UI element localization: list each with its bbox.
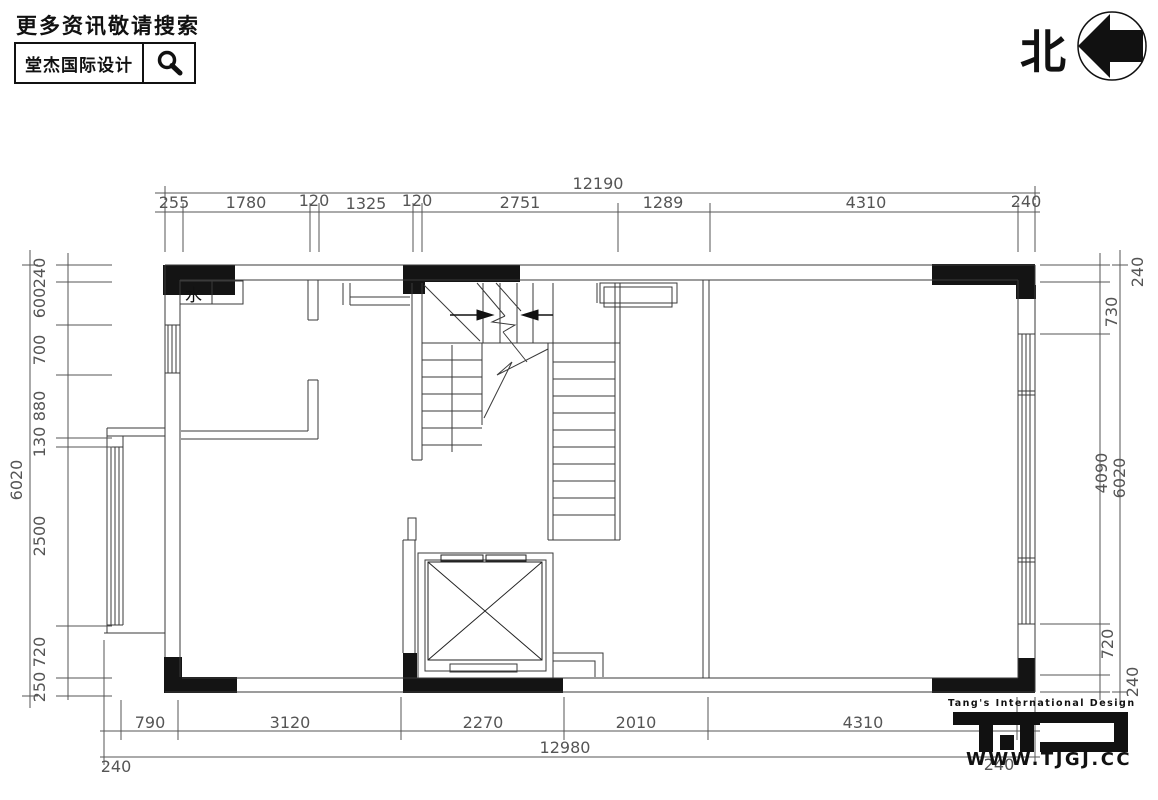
svg-text:255: 255	[159, 193, 190, 212]
svg-text:730: 730	[1102, 297, 1121, 328]
svg-text:880: 880	[30, 391, 49, 422]
svg-text:240: 240	[1011, 192, 1042, 211]
dim-left-labels: 240 600 700 880 130 2500 720 250 6020	[7, 258, 49, 703]
water-label: 水	[185, 286, 202, 306]
svg-text:3120: 3120	[270, 713, 311, 732]
svg-text:2010: 2010	[616, 713, 657, 732]
svg-text:4090: 4090	[1092, 453, 1111, 494]
svg-text:6020: 6020	[1110, 458, 1129, 499]
svg-text:700: 700	[30, 335, 49, 366]
svg-text:2270: 2270	[463, 713, 504, 732]
svg-text:240: 240	[101, 757, 132, 776]
svg-text:1289: 1289	[643, 193, 684, 212]
svg-text:12190: 12190	[573, 174, 624, 193]
svg-text:1780: 1780	[226, 193, 267, 212]
outer-walls	[104, 265, 1035, 692]
svg-text:2500: 2500	[30, 516, 49, 557]
north-arrow-icon	[1078, 12, 1146, 80]
svg-text:600: 600	[30, 288, 49, 319]
floor-plan-drawing: 水 12190 255 17	[0, 0, 1158, 800]
svg-text:240: 240	[1123, 667, 1142, 698]
brand-name: 堂杰国际设计	[16, 44, 144, 82]
header-tagline: 更多资讯敬请搜索	[16, 10, 200, 40]
north-label: 北	[1020, 16, 1066, 82]
footer-brand-line: Tang's International Design	[948, 698, 1124, 709]
brand-search-box: 堂杰国际设计	[14, 42, 196, 84]
svg-text:240: 240	[30, 258, 49, 289]
svg-text:720: 720	[1098, 629, 1117, 660]
tid-logo	[953, 712, 1128, 752]
svg-text:2751: 2751	[500, 193, 541, 212]
svg-text:6020: 6020	[7, 460, 26, 501]
svg-text:4310: 4310	[843, 713, 884, 732]
svg-text:130: 130	[30, 427, 49, 458]
svg-text:250: 250	[30, 672, 49, 703]
dim-bottom-labels: 790 3120 2270 2010 4310 12980 240 240	[101, 713, 1015, 776]
wall-columns	[163, 264, 1036, 693]
svg-text:120: 120	[299, 191, 330, 210]
svg-text:1325: 1325	[346, 194, 387, 213]
svg-text:790: 790	[135, 713, 166, 732]
staircase	[412, 283, 620, 540]
svg-text:4310: 4310	[846, 193, 887, 212]
svg-text:240: 240	[1128, 257, 1147, 288]
svg-text:120: 120	[402, 191, 433, 210]
interior-walls	[181, 280, 709, 678]
elevator-shaft	[403, 518, 603, 678]
search-icon	[144, 44, 194, 82]
svg-text:12980: 12980	[540, 738, 591, 757]
footer-website: WWW.TJGJ.CC	[966, 749, 1132, 770]
svg-text:720: 720	[30, 637, 49, 668]
dim-top	[155, 186, 1040, 252]
